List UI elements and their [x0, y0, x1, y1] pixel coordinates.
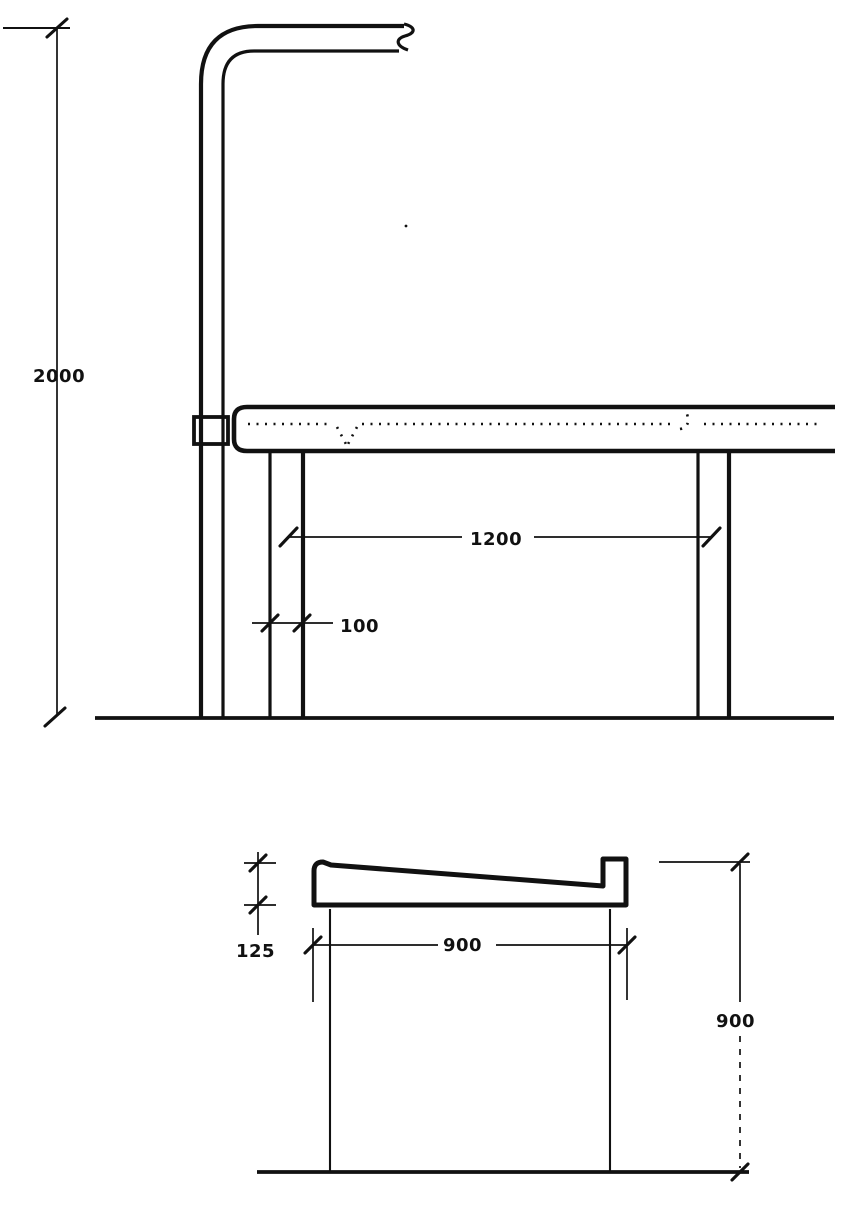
dim-label-leg-span: 1200 — [470, 529, 522, 550]
dim-label-overall-height: 2000 — [33, 366, 85, 387]
dim-label-slab-thickness: 125 — [236, 941, 275, 962]
hidden-hook-detail — [680, 414, 688, 429]
table-top — [234, 407, 835, 451]
dimension-overall-height: 2000 — [3, 19, 85, 726]
dimension-leg-span: 1200 — [280, 528, 720, 550]
dim-label-slab-width: 900 — [443, 935, 482, 956]
dim-label-worktop-height: 900 — [716, 1011, 755, 1032]
slab-section — [314, 859, 626, 905]
technical-drawing: 2000 — [0, 0, 862, 1207]
worktop-outline — [234, 407, 835, 451]
scan-speck — [405, 225, 408, 228]
hidden-socket-detail — [337, 427, 357, 446]
section-view: 125 900 900 — [236, 852, 755, 1180]
dim-label-leg-width: 100 — [340, 616, 379, 637]
table-legs — [270, 450, 729, 719]
dimension-slab-thickness: 125 — [236, 852, 276, 962]
dimension-worktop-height: 900 — [659, 854, 755, 1180]
drawing-sheet: 2000 — [0, 0, 862, 1207]
elevation-view: 2000 — [3, 19, 835, 726]
dim-tick — [45, 708, 65, 726]
dimension-slab-width: 900 — [305, 928, 635, 1002]
grab-rail — [201, 24, 413, 719]
